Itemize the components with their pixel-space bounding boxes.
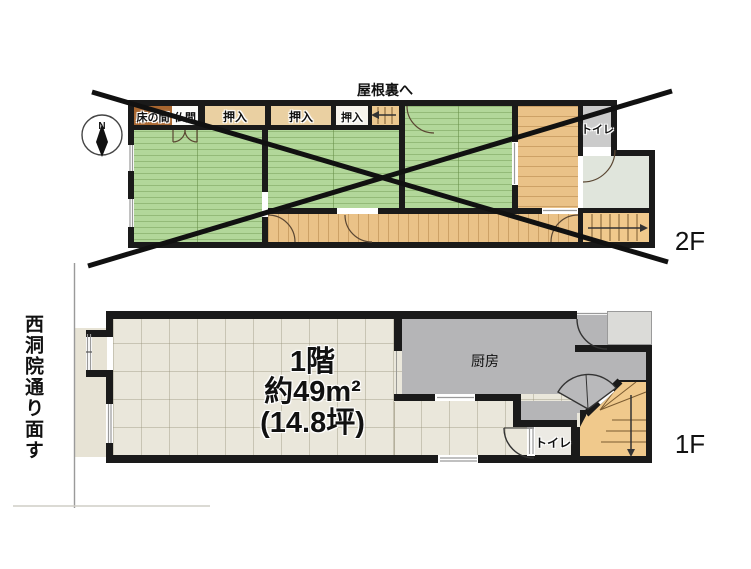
anteroom-2f — [583, 156, 649, 208]
wall — [265, 106, 271, 125]
floorplan-canvas: 屋根裏へ 床の間 仏間 押入 押入 押入 トイレ 2F — [0, 0, 751, 569]
tokonoma-label: 床の間 — [133, 109, 173, 125]
oshiire-label-2: 押入 — [283, 108, 319, 125]
tatami-seam — [197, 125, 198, 242]
wood-corridor-vertical — [518, 106, 578, 208]
door-opening — [583, 147, 611, 156]
wall — [580, 410, 586, 427]
wood-corridor-horizontal — [268, 214, 578, 242]
oshiire-label-1: 押入 — [217, 108, 253, 125]
wall — [262, 125, 268, 192]
sliding-door-opening — [512, 142, 518, 185]
wall — [521, 420, 577, 427]
wall — [86, 330, 113, 337]
attic-note-label: 屋根裏へ — [345, 80, 425, 100]
area-label-line3: (14.8坪) — [215, 399, 410, 441]
kitchen-1f-east — [577, 352, 646, 383]
compass-rose: N — [82, 115, 122, 157]
floor-1f-label: 1F — [667, 429, 713, 460]
wall — [571, 427, 580, 456]
street-name-label: 西洞院通り面す — [18, 312, 46, 462]
wall — [128, 242, 655, 248]
compass-needle — [96, 124, 108, 157]
toilet-2f-label: トイレ — [581, 121, 613, 137]
compass-north-letter: N — [98, 121, 105, 132]
wall — [575, 345, 652, 352]
entrance-porch — [607, 311, 652, 345]
storefront-door-opening — [86, 337, 92, 370]
wall — [86, 370, 113, 377]
wall — [106, 443, 113, 457]
wall — [649, 150, 655, 248]
toilet-1f-label: トイレ — [534, 434, 572, 451]
wall — [578, 213, 583, 248]
window-opening — [438, 455, 478, 463]
window-opening — [128, 199, 134, 227]
tatami-seam — [333, 125, 334, 208]
wall — [618, 380, 646, 386]
wall — [106, 377, 113, 404]
butsuma-label: 仏間 — [170, 109, 200, 125]
wall — [399, 100, 405, 212]
kitchen-1f-vestibule — [577, 315, 607, 345]
wall — [378, 208, 542, 214]
wall — [262, 217, 268, 242]
wall — [106, 311, 113, 330]
wall — [512, 100, 518, 142]
wall — [106, 455, 438, 463]
floor-2f-label: 2F — [668, 226, 712, 257]
stairs-2f — [583, 213, 649, 242]
wall — [268, 208, 337, 214]
wall — [513, 394, 521, 427]
door-opening — [542, 208, 578, 214]
wall — [646, 345, 652, 463]
window-opening — [106, 404, 113, 443]
wall — [512, 185, 518, 208]
wall — [478, 455, 652, 463]
wall — [578, 208, 655, 213]
kitchen-1f-stair-hall — [577, 383, 613, 413]
wall — [134, 125, 405, 130]
window-opening — [435, 394, 475, 401]
wall — [106, 311, 577, 319]
tatami-room-1 — [134, 125, 262, 242]
window-opening — [128, 145, 134, 171]
attic-stairs-nook — [372, 106, 399, 125]
kitchen-label: 厨房 — [465, 351, 505, 371]
kitchen-1f-south — [521, 401, 577, 420]
oshiire-label-3: 押入 — [334, 109, 370, 125]
tatami-seam — [458, 106, 459, 208]
